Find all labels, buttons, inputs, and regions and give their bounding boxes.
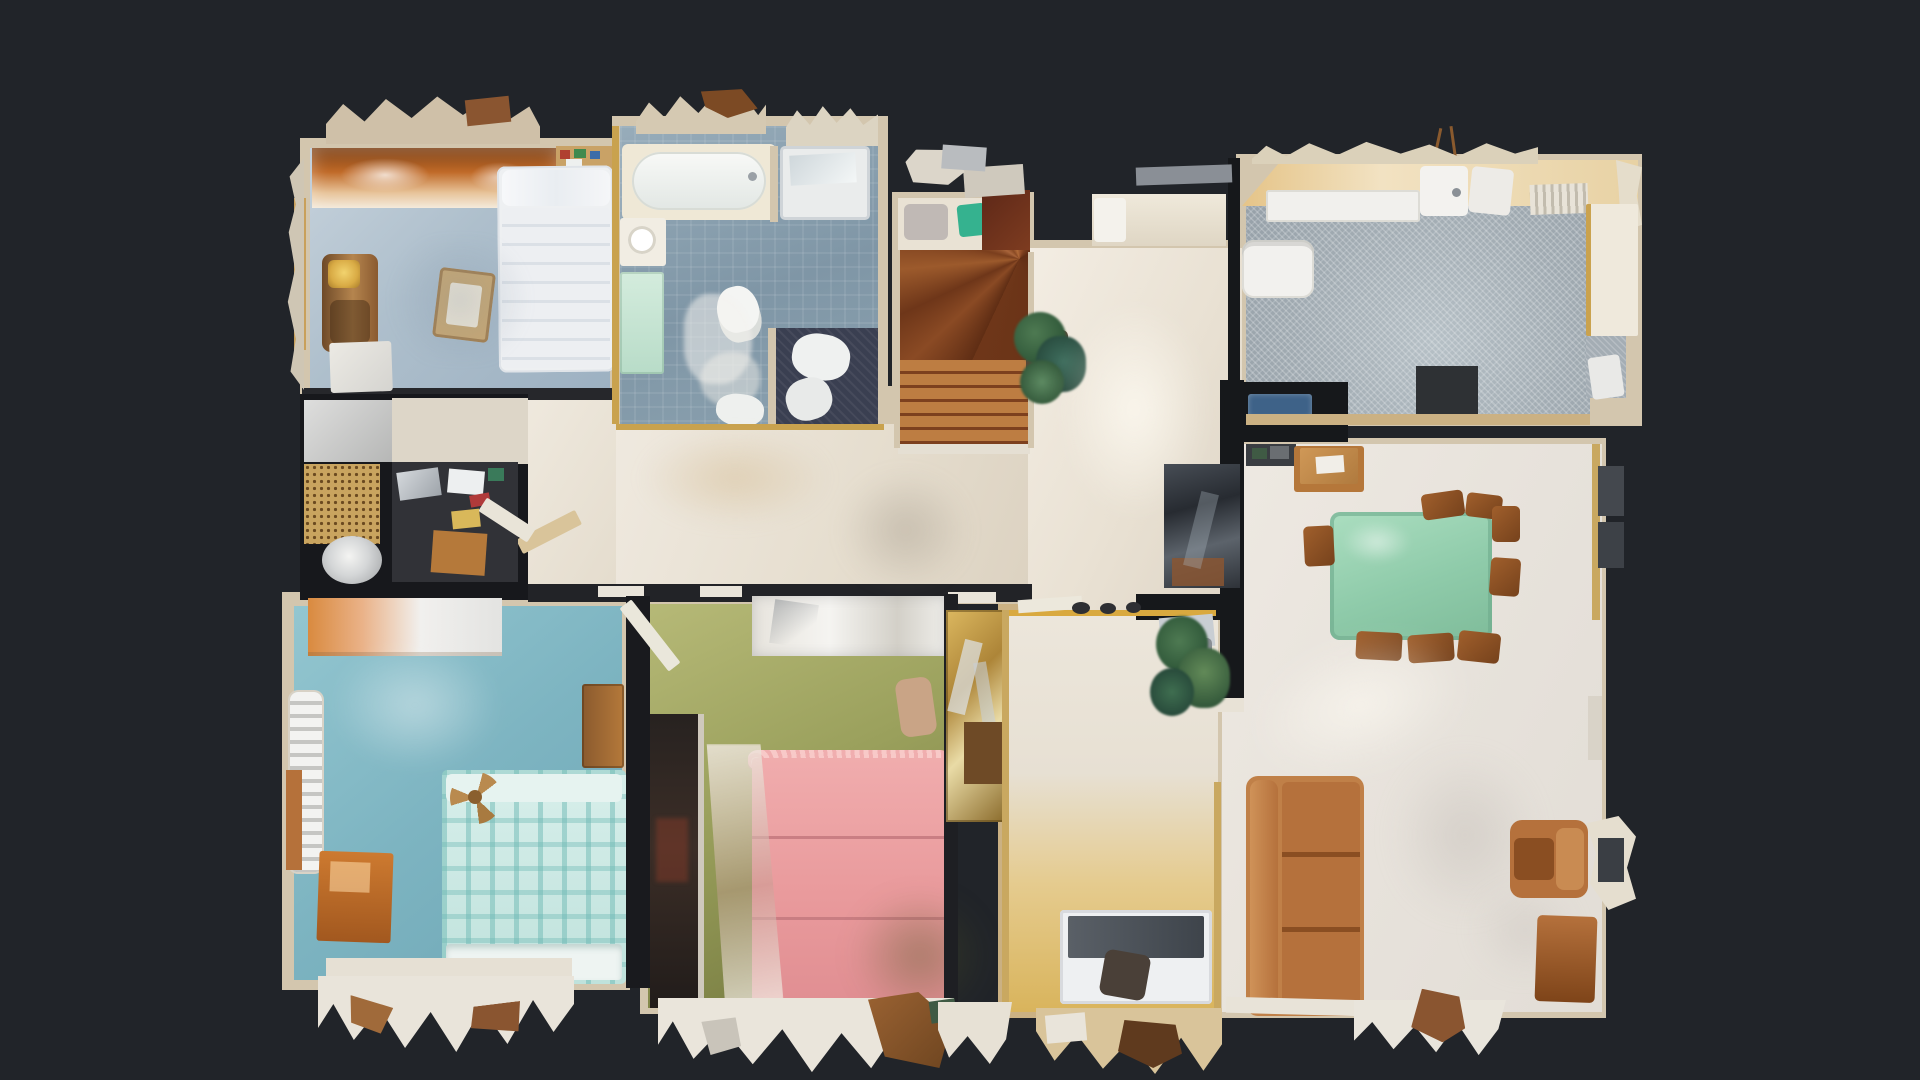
vanity-sink <box>628 226 656 254</box>
porch-teal-wood-2 <box>468 1001 523 1037</box>
teal-desk-highlight <box>329 861 370 892</box>
closet-edge-trim <box>698 714 704 1008</box>
sofa-shadow <box>330 300 370 344</box>
carpet-room-dark-notch <box>1416 366 1478 418</box>
clutter-wood-floor <box>431 530 488 576</box>
carpet-room-counter <box>1266 190 1420 222</box>
armchair-back <box>1556 828 1584 890</box>
hall-shade <box>840 470 970 590</box>
shoe-1 <box>1072 602 1090 614</box>
ragged-top-carpet-room <box>1252 138 1538 164</box>
stair-banister <box>982 190 1030 252</box>
clutter-white-item <box>447 468 485 495</box>
dining-window-1 <box>1598 466 1624 516</box>
dining-clutter-green <box>1252 448 1267 459</box>
ragged-top-shower <box>786 104 878 146</box>
sofa-seat-cushions <box>1282 782 1360 1010</box>
box-label <box>1315 455 1344 474</box>
carpet-room-bottom-wall <box>1246 414 1590 425</box>
bathtub <box>632 152 766 210</box>
family-rightwall-trim <box>1588 696 1602 760</box>
hall-threshold-2 <box>700 586 742 597</box>
bathtub-drain <box>748 172 757 181</box>
sink-faucet <box>1452 188 1461 197</box>
study-right-wall <box>1214 782 1221 1012</box>
carpet-room-sink-b <box>1468 166 1515 216</box>
landing-curtain <box>1094 198 1126 242</box>
bay-lower-item <box>1587 354 1625 400</box>
porch-study-white <box>1045 1012 1087 1043</box>
landing-window-sill <box>1136 164 1233 185</box>
dining-chair-right-1 <box>1492 506 1520 542</box>
closet-leopard-rug <box>304 464 380 544</box>
white-armchair <box>1242 240 1314 298</box>
plant-foliage-3 <box>1020 360 1064 404</box>
stairs-left-rail <box>894 250 900 448</box>
mint-cabinet <box>620 272 664 374</box>
master-floor-shadow <box>380 240 540 360</box>
winder-stairs <box>898 250 1030 362</box>
dresser-sheen <box>340 158 430 192</box>
shoe-3 <box>1126 602 1141 613</box>
bathroom-left-wall <box>612 126 619 424</box>
closet-red-glow <box>656 818 688 882</box>
dining-clutter-gray <box>1270 446 1289 459</box>
ragged-top-master-wood <box>465 96 511 126</box>
ragged-left-master <box>286 158 304 390</box>
shelf-item-green <box>574 149 586 158</box>
stair-top-gray-debris <box>941 144 987 171</box>
armchair-seat-well <box>1514 838 1554 880</box>
closet-gray-cabinet <box>304 400 392 462</box>
tub-shower-divider <box>770 146 778 222</box>
dollhouse-floorplan-viewport[interactable] <box>0 0 1920 1080</box>
family-bay-dark <box>1598 838 1624 882</box>
study-desk-top <box>1068 916 1204 958</box>
bedroom-divider-wall <box>626 596 650 988</box>
carpet-room-left-gap <box>1228 158 1240 420</box>
shelf-item-blue <box>590 151 600 159</box>
floorplan-canvas[interactable] <box>0 0 1920 1080</box>
closet-cream-patch <box>392 398 528 464</box>
clutter-yellow-item <box>451 509 481 530</box>
stair-landing-clutter <box>904 204 948 240</box>
carpet-room-bay <box>1586 204 1638 336</box>
leather-ottoman <box>1535 915 1598 1003</box>
dining-chair-left <box>1303 525 1335 567</box>
dining-table-highlight <box>1342 520 1412 564</box>
dining-chair-right-2 <box>1489 557 1522 597</box>
straight-stairs <box>898 360 1030 448</box>
shower-glass <box>789 152 856 185</box>
study-left-wall <box>1002 610 1009 1012</box>
dining-window-2 <box>1598 522 1624 568</box>
shelf-item-red <box>560 150 570 159</box>
hall-warm-light <box>640 430 830 526</box>
porch-mid-white <box>938 1002 1012 1064</box>
dining-chair-bottom-3 <box>1457 630 1502 664</box>
pink-dresser-mirror-streak <box>769 599 819 649</box>
closet-trash-bin <box>322 536 382 584</box>
shoe-2 <box>1100 603 1116 614</box>
sofa-back-highlight <box>1250 780 1278 1012</box>
ragged-left-orange <box>286 770 302 870</box>
wc-divider <box>768 328 776 426</box>
stairs-bottom-step <box>898 444 1030 454</box>
study-plant-foliage-3 <box>1150 668 1194 716</box>
teal-chest-right <box>582 684 624 768</box>
carpet-room-vent <box>1529 183 1588 215</box>
teal-light-blob <box>330 640 500 770</box>
fan-hub <box>468 790 482 804</box>
clutter-silver-item <box>396 467 441 501</box>
study-chair <box>1098 948 1151 1001</box>
porch-study-dark <box>1118 1020 1182 1068</box>
hallway-floor-west[interactable] <box>528 392 616 596</box>
master-bed-pillows <box>502 170 610 206</box>
clutter-teal-item <box>488 468 504 481</box>
sofa-lamp <box>328 260 360 288</box>
